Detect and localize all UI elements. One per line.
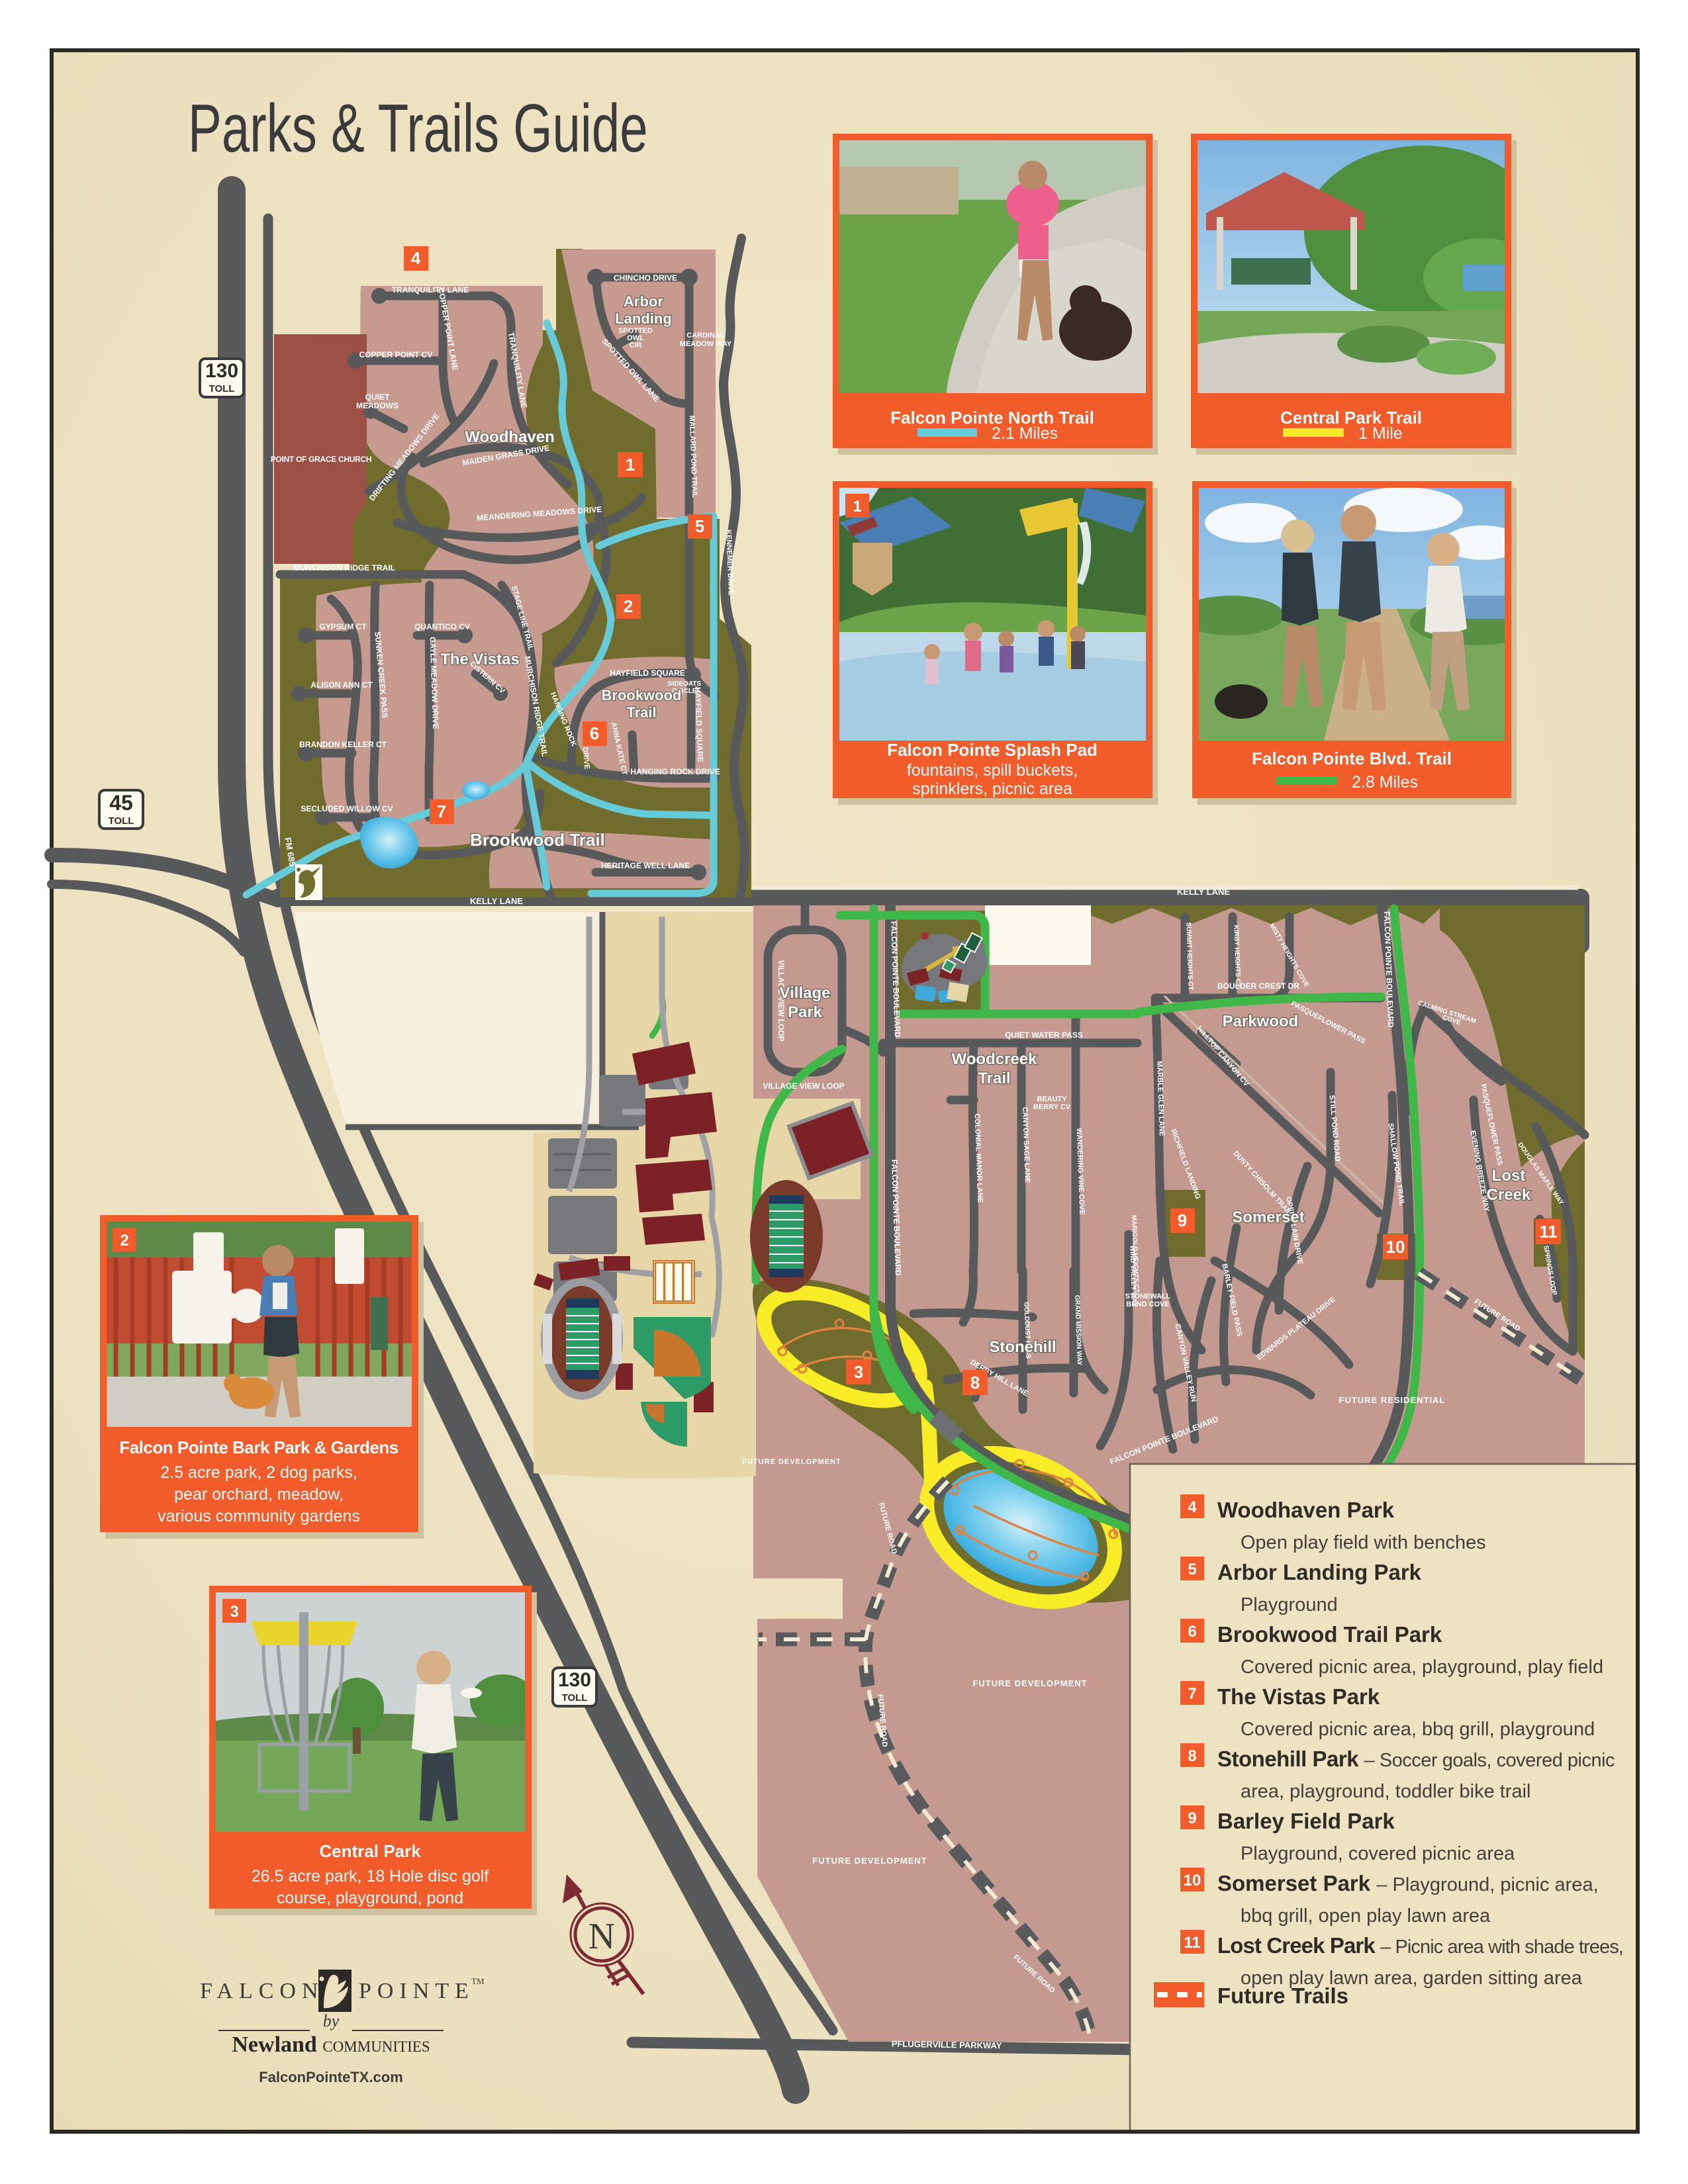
svg-text:11: 11 xyxy=(1539,1222,1558,1242)
svg-text:TOLL: TOLL xyxy=(562,1692,588,1704)
svg-text:Falcon Pointe Bark Park & Gard: Falcon Pointe Bark Park & Gardens xyxy=(119,1437,398,1457)
svg-text:CIR: CIR xyxy=(630,341,642,349)
svg-text:TOLL: TOLL xyxy=(209,383,235,394)
svg-text:2: 2 xyxy=(120,1232,128,1250)
svg-text:Somerset: Somerset xyxy=(1232,1208,1304,1226)
svg-text:pear orchard, meadow,: pear orchard, meadow, xyxy=(174,1485,344,1504)
svg-text:FUTURE RESIDENTIAL: FUTURE RESIDENTIAL xyxy=(1339,1395,1446,1405)
svg-text:1: 1 xyxy=(853,498,861,516)
svg-text:5: 5 xyxy=(695,516,704,536)
svg-text:STONEWALL: STONEWALL xyxy=(1125,1293,1171,1300)
svg-text:area, playground, toddler bike: area, playground, toddler bike trail xyxy=(1241,1781,1530,1802)
svg-text:11: 11 xyxy=(1184,1934,1200,1952)
svg-text:HANGING ROCK DRIVE: HANGING ROCK DRIVE xyxy=(630,767,720,776)
svg-text:130: 130 xyxy=(205,360,238,382)
svg-text:various community gardens: various community gardens xyxy=(158,1507,360,1525)
svg-text:Barley Field Park: Barley Field Park xyxy=(1217,1809,1395,1833)
svg-text:2.8 Miles: 2.8 Miles xyxy=(1352,773,1418,792)
svg-text:QUANTICO CV: QUANTICO CV xyxy=(414,622,470,631)
svg-text:Landing: Landing xyxy=(615,310,672,327)
svg-text:KELLY LANE: KELLY LANE xyxy=(1177,887,1231,897)
svg-text:Parks & Trails Guide: Parks & Trails Guide xyxy=(188,91,648,167)
svg-text:4: 4 xyxy=(1188,1498,1197,1516)
svg-text:BRANDON KELLER CT: BRANDON KELLER CT xyxy=(299,740,387,749)
svg-text:7: 7 xyxy=(437,801,446,821)
svg-text:8: 8 xyxy=(970,1373,980,1392)
svg-text:Stonehill: Stonehill xyxy=(989,1338,1056,1356)
svg-text:PFLUGERVILLE PARKWAY: PFLUGERVILLE PARKWAY xyxy=(892,2039,1002,2051)
svg-text:QUIET WATER PASS: QUIET WATER PASS xyxy=(1005,1030,1083,1040)
svg-text:Lost Creek Park – Picnic area: Lost Creek Park – Picnic area with shade… xyxy=(1217,1933,1623,1958)
svg-text:SECLUDED WILLOW CV: SECLUDED WILLOW CV xyxy=(301,804,393,813)
svg-text:FALCON: FALCON xyxy=(200,1979,324,2003)
svg-text:4: 4 xyxy=(411,248,421,268)
svg-text:FUTURE DEVELOPMENT: FUTURE DEVELOPMENT xyxy=(812,1856,927,1866)
svg-text:9: 9 xyxy=(1188,1809,1196,1827)
svg-text:Somerset Park – Playground, pi: Somerset Park – Playground, picnic area, xyxy=(1217,1871,1599,1895)
svg-text:BERRY CV: BERRY CV xyxy=(1033,1103,1071,1111)
svg-text:Woodcreek: Woodcreek xyxy=(952,1050,1038,1068)
svg-text:fountains, spill buckets,: fountains, spill buckets, xyxy=(907,761,1078,780)
svg-text:BOULDER CREST DR: BOULDER CREST DR xyxy=(1217,981,1299,991)
svg-text:10: 10 xyxy=(1386,1237,1405,1257)
svg-text:TOLL: TOLL xyxy=(109,815,134,827)
svg-text:Woodhaven: Woodhaven xyxy=(465,428,555,446)
svg-text:FalconPointeTX.com: FalconPointeTX.com xyxy=(259,2069,403,2085)
svg-text:POINTE: POINTE xyxy=(359,1979,475,2003)
svg-text:26.5 acre park, 18 Hole disc g: 26.5 acre park, 18 Hole disc golf xyxy=(252,1867,489,1886)
svg-text:Park: Park xyxy=(788,1003,823,1021)
svg-text:The Vistas: The Vistas xyxy=(440,651,520,668)
svg-text:CARDINAL: CARDINAL xyxy=(686,332,725,340)
svg-text:2.1 Miles: 2.1 Miles xyxy=(992,424,1058,443)
svg-text:5: 5 xyxy=(1188,1561,1196,1578)
svg-text:Brookwood Trail Park: Brookwood Trail Park xyxy=(1217,1622,1442,1647)
svg-text:6: 6 xyxy=(590,723,599,743)
svg-text:KELLY LANE: KELLY LANE xyxy=(470,896,524,906)
svg-text:COPPER POINT CV: COPPER POINT CV xyxy=(359,350,433,359)
svg-text:3: 3 xyxy=(854,1362,863,1382)
svg-text:6: 6 xyxy=(1188,1623,1196,1641)
svg-text:3: 3 xyxy=(230,1603,238,1621)
svg-text:QUIET: QUIET xyxy=(365,392,390,402)
svg-text:TM: TM xyxy=(471,1976,485,1986)
svg-text:The Vistas Park: The Vistas Park xyxy=(1217,1684,1380,1709)
svg-text:Open play field with benches: Open play field with benches xyxy=(1241,1532,1486,1553)
svg-text:Future Trails: Future Trails xyxy=(1217,1983,1348,2008)
svg-text:FUTURE DEVELOPMENT: FUTURE DEVELOPMENT xyxy=(742,1458,841,1466)
svg-text:bbq grill, open play lawn area: bbq grill, open play lawn area xyxy=(1241,1905,1491,1927)
svg-text:Covered picnic area, bbq grill: Covered picnic area, bbq grill, playgrou… xyxy=(1241,1719,1595,1740)
svg-text:Playground: Playground xyxy=(1241,1594,1338,1615)
svg-text:Covered picnic area, playgroun: Covered picnic area, playground, play fi… xyxy=(1241,1657,1603,1678)
svg-text:MURCHISON RIDGE TRAIL: MURCHISON RIDGE TRAIL xyxy=(293,563,395,572)
svg-text:course, playground, pond: course, playground, pond xyxy=(277,1889,463,1907)
svg-text:Stonehill Park – Soccer goals,: Stonehill Park – Soccer goals, covered p… xyxy=(1217,1747,1615,1771)
svg-text:BEAUTY: BEAUTY xyxy=(1037,1095,1067,1103)
svg-text:BEND COVE: BEND COVE xyxy=(1126,1300,1169,1308)
svg-text:Arbor: Arbor xyxy=(624,293,663,310)
svg-text:Creek: Creek xyxy=(1487,1186,1531,1204)
svg-text:HERITAGE WELL LANE: HERITAGE WELL LANE xyxy=(601,861,690,870)
svg-text:sprinklers, picnic area: sprinklers, picnic area xyxy=(912,780,1072,798)
svg-text:Parkwood: Parkwood xyxy=(1223,1013,1299,1030)
svg-text:130: 130 xyxy=(558,1669,591,1691)
svg-text:by: by xyxy=(323,2011,340,2030)
svg-text:MEADOWS: MEADOWS xyxy=(356,401,399,410)
svg-text:2.5 acre park, 2 dog parks,: 2.5 acre park, 2 dog parks, xyxy=(160,1463,357,1482)
svg-text:9: 9 xyxy=(1178,1210,1187,1230)
svg-text:10: 10 xyxy=(1184,1872,1201,1889)
svg-text:Lost: Lost xyxy=(1492,1167,1526,1185)
svg-text:GYPSUM CT: GYPSUM CT xyxy=(319,622,367,631)
svg-text:Arbor Landing Park: Arbor Landing Park xyxy=(1217,1560,1422,1584)
svg-text:Playground, covered picnic are: Playground, covered picnic area xyxy=(1241,1843,1515,1864)
svg-text:Village: Village xyxy=(780,984,831,1002)
svg-text:FUTURE DEVELOPMENT: FUTURE DEVELOPMENT xyxy=(972,1678,1087,1688)
svg-text:Central Park: Central Park xyxy=(319,1841,421,1861)
svg-text:7: 7 xyxy=(1188,1685,1196,1703)
svg-text:Falcon Pointe Blvd. Trail: Falcon Pointe Blvd. Trail xyxy=(1252,749,1452,768)
svg-text:VILLAGE VIEW LOOP: VILLAGE VIEW LOOP xyxy=(763,1081,844,1091)
svg-text:2: 2 xyxy=(624,596,633,616)
svg-text:Trail: Trail xyxy=(626,704,656,721)
svg-text:MEADOW WAY: MEADOW WAY xyxy=(680,340,732,348)
svg-text:8: 8 xyxy=(1188,1747,1196,1765)
svg-text:Falcon Pointe Splash Pad: Falcon Pointe Splash Pad xyxy=(887,740,1098,760)
svg-text:Brookwood: Brookwood xyxy=(602,687,682,704)
svg-text:ALISON ANN CT: ALISON ANN CT xyxy=(310,680,373,690)
svg-text:Trail: Trail xyxy=(978,1069,1010,1087)
svg-text:HAYFIELD SQUARE: HAYFIELD SQUARE xyxy=(610,668,685,678)
svg-text:CHINCHO DRIVE: CHINCHO DRIVE xyxy=(614,273,677,283)
svg-text:TRANQUILITY LANE: TRANQUILITY LANE xyxy=(392,285,469,295)
svg-text:45: 45 xyxy=(109,791,133,815)
svg-text:POINT OF GRACE CHURCH: POINT OF GRACE CHURCH xyxy=(271,455,371,464)
svg-text:1: 1 xyxy=(626,455,635,475)
svg-text:Brookwood Trail: Brookwood Trail xyxy=(470,830,605,850)
svg-text:1 Mile: 1 Mile xyxy=(1358,424,1403,443)
svg-text:Woodhaven Park: Woodhaven Park xyxy=(1217,1498,1395,1522)
svg-text:N: N xyxy=(588,1916,615,1957)
